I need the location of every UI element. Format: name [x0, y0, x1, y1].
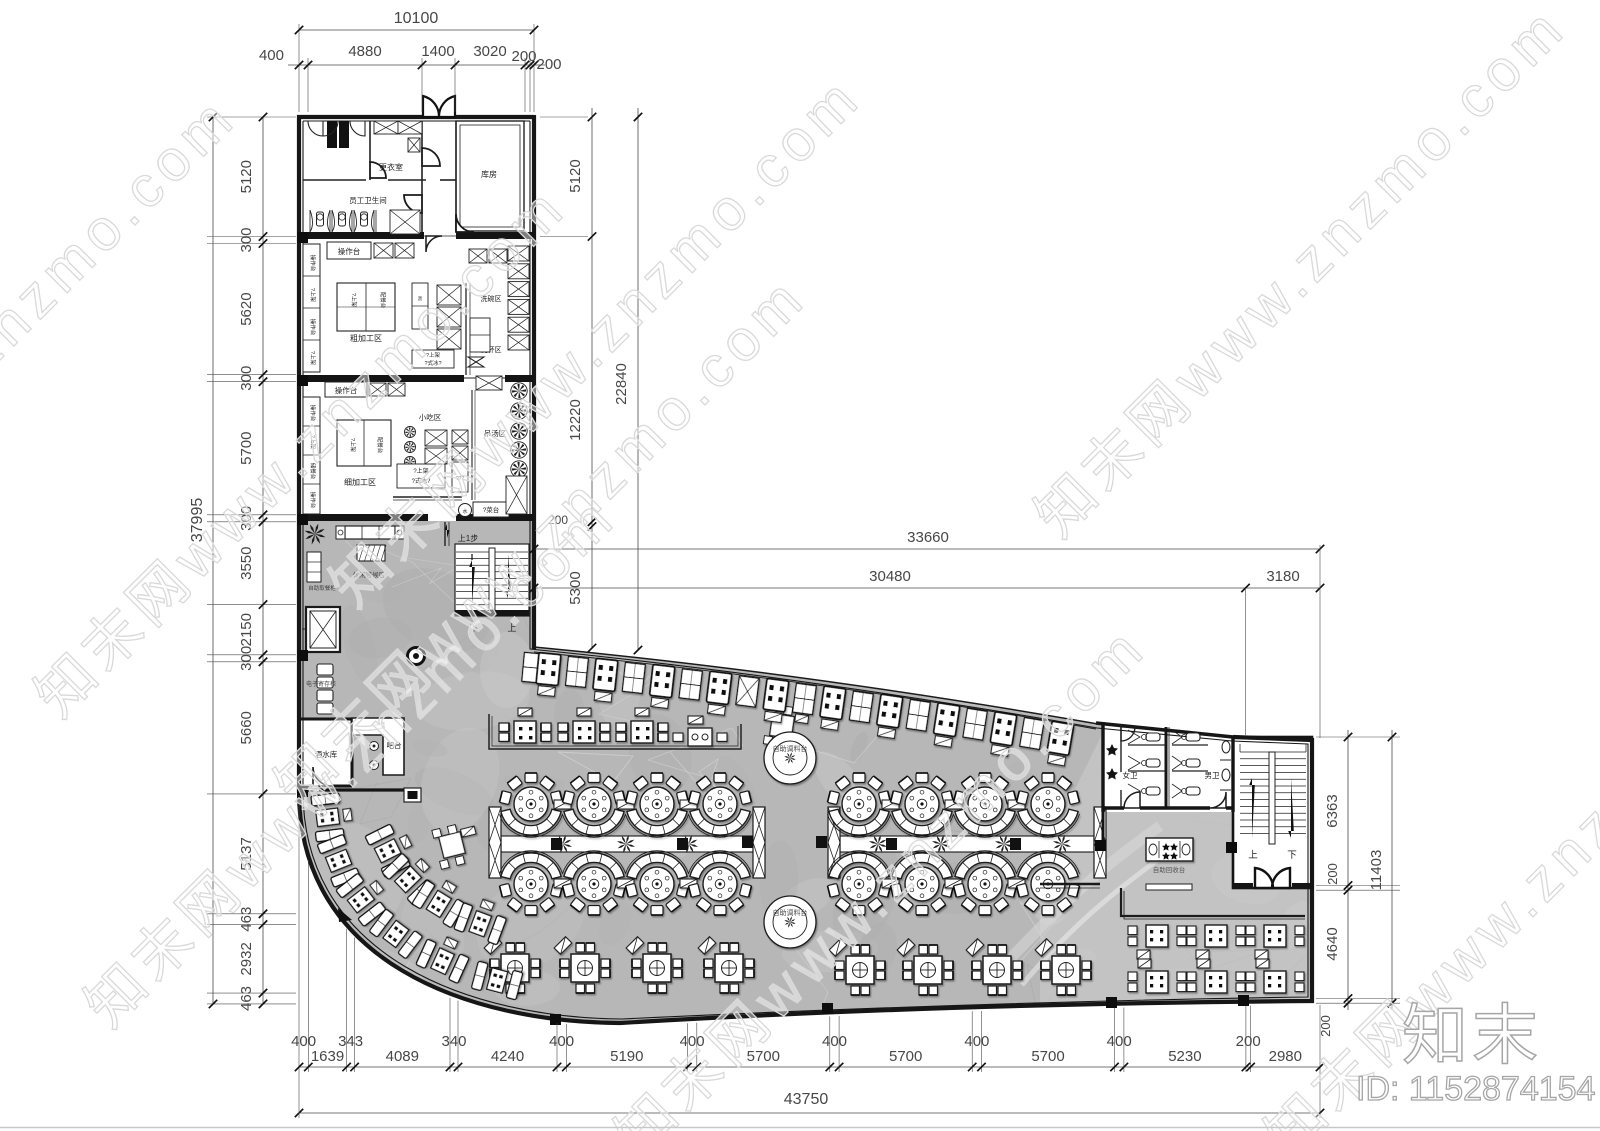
svg-text:电子寄存柜: 电子寄存柜 — [306, 680, 336, 688]
svg-text:5660: 5660 — [238, 711, 255, 744]
svg-text:操作台: 操作台 — [309, 319, 317, 336]
svg-text:上1步: 上1步 — [458, 534, 478, 543]
svg-text:1400: 1400 — [421, 43, 454, 60]
svg-text:ID: 1152874154: ID: 1152874154 — [1356, 1070, 1595, 1108]
svg-text:5620: 5620 — [238, 292, 255, 325]
svg-text:女卫: 女卫 — [1123, 770, 1139, 780]
svg-text:操作台: 操作台 — [338, 246, 361, 256]
svg-text:30480: 30480 — [869, 568, 911, 585]
svg-text:男卫: 男卫 — [1205, 771, 1221, 780]
svg-text:5230: 5230 — [1168, 1048, 1201, 1065]
svg-text:1639: 1639 — [311, 1048, 344, 1065]
svg-text:400: 400 — [259, 47, 284, 64]
svg-text:3180: 3180 — [1266, 568, 1299, 585]
svg-text:200: 200 — [1325, 863, 1340, 885]
svg-text:2980: 2980 — [1269, 1048, 1302, 1065]
svg-text:上: 上 — [1248, 850, 1258, 861]
svg-text:43750: 43750 — [784, 1091, 829, 1108]
svg-text:11403: 11403 — [1368, 850, 1385, 891]
svg-text:操作台: 操作台 — [309, 255, 317, 272]
svg-text:300: 300 — [238, 646, 255, 671]
svg-text:配餐台: 配餐台 — [379, 292, 387, 309]
svg-text:6363: 6363 — [1324, 794, 1341, 827]
svg-text:自助调料台: 自助调料台 — [773, 744, 808, 753]
svg-text:4240: 4240 — [491, 1048, 524, 1065]
svg-text:?上架: ?上架 — [309, 351, 317, 366]
svg-text:400: 400 — [549, 1033, 574, 1050]
svg-text:200: 200 — [536, 56, 561, 73]
svg-text:200: 200 — [1236, 1033, 1261, 1050]
svg-text:2150: 2150 — [238, 613, 255, 646]
svg-text:5120: 5120 — [567, 159, 584, 192]
svg-text:340: 340 — [441, 1033, 466, 1050]
svg-text:400: 400 — [1107, 1033, 1132, 1050]
svg-text:200: 200 — [511, 48, 536, 65]
svg-text:463: 463 — [238, 986, 255, 1011]
svg-text:33660: 33660 — [907, 529, 949, 546]
svg-text:下: 下 — [1287, 850, 1297, 861]
svg-text:知末: 知末 — [1402, 998, 1542, 1072]
svg-text:小吃区: 小吃区 — [419, 412, 442, 422]
svg-text:10100: 10100 — [394, 10, 439, 27]
svg-text:4640: 4640 — [1324, 927, 1341, 960]
svg-text:自助回收台: 自助回收台 — [1153, 865, 1186, 874]
svg-text:5700: 5700 — [889, 1048, 922, 1065]
svg-text:4880: 4880 — [348, 43, 381, 60]
svg-text:库房: 库房 — [481, 169, 497, 179]
svg-text:400: 400 — [964, 1033, 989, 1050]
svg-text:?菜台: ?菜台 — [483, 505, 500, 514]
svg-text:5190: 5190 — [610, 1048, 643, 1065]
svg-text:22840: 22840 — [613, 363, 630, 405]
svg-text:5120: 5120 — [238, 160, 255, 193]
svg-text:更衣室: 更衣室 — [379, 162, 403, 172]
svg-text:2932: 2932 — [238, 942, 255, 975]
svg-text:自助调料台: 自助调料台 — [773, 908, 808, 917]
svg-text:细加工区: 细加工区 — [344, 477, 376, 487]
svg-text:?上架: ?上架 — [309, 288, 317, 303]
svg-text:3020: 3020 — [473, 43, 506, 60]
svg-text:400: 400 — [822, 1033, 847, 1050]
svg-text:?上架: ?上架 — [350, 293, 358, 308]
svg-text:员工卫生间: 员工卫生间 — [349, 195, 387, 205]
svg-text:300: 300 — [238, 366, 255, 391]
svg-text:配餐台: 配餐台 — [376, 437, 384, 454]
svg-text:4089: 4089 — [386, 1048, 419, 1065]
svg-text:5700: 5700 — [1031, 1048, 1064, 1065]
svg-text:300: 300 — [238, 227, 255, 252]
svg-text:343: 343 — [338, 1033, 363, 1050]
svg-text:操作台: 操作台 — [309, 492, 317, 509]
